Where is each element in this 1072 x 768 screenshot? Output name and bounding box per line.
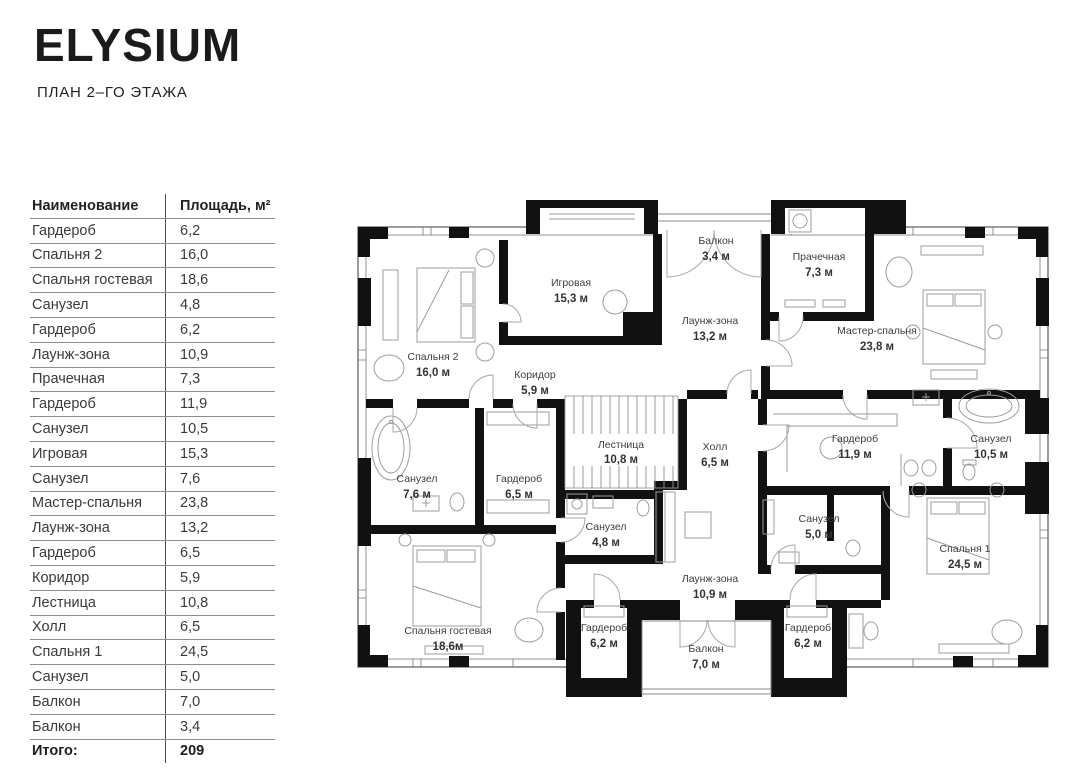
room-area-label: 6,5 м: [505, 489, 533, 501]
table-row: Санузел7,6: [30, 466, 275, 491]
room-name-label: Коридор: [514, 369, 556, 381]
room-name-label: Балкон: [688, 643, 723, 655]
table-row: Гардероб6,2: [30, 218, 275, 243]
room-area-label: 5,0 м: [805, 529, 833, 541]
room-area-label: 23,8 м: [860, 341, 894, 353]
table-row: Холл6,5: [30, 615, 275, 640]
table-row: Гардероб6,5: [30, 541, 275, 566]
table-row: Лаунж-зона10,9: [30, 342, 275, 367]
table-row: Балкон3,4: [30, 714, 275, 739]
room-name-label: Лаунж-зона: [682, 315, 739, 327]
room-area-label: 16,0 м: [416, 367, 450, 379]
room-name-label: Гардероб: [785, 622, 831, 634]
room-area-label: 5,9 м: [521, 385, 549, 397]
room-name-label: Лаунж-зона: [682, 573, 739, 585]
table-row: Балкон7,0: [30, 689, 275, 714]
table-row: Гардероб11,9: [30, 392, 275, 417]
room-name-label: Санузел: [971, 433, 1012, 445]
room-area-label: 7,6 м: [403, 489, 431, 501]
room-area-label: 4,8 м: [592, 537, 620, 549]
total-label: Итого:: [30, 739, 166, 763]
room-area-label: 6,2 м: [794, 638, 822, 650]
page-title: ПЛАН 2–ГО ЭТАЖА: [37, 84, 188, 101]
floor-plan-drawing: Балкон 3,4 м Игровая 15,3 м Прачечная 7,…: [353, 200, 1055, 700]
game-room-alcove: [540, 208, 644, 234]
room-area-label: 11,9 м: [838, 449, 871, 461]
room-name-label: Гардероб: [581, 622, 627, 634]
table-row: Спальня 124,5: [30, 640, 275, 665]
room-area-label: 7,3 м: [805, 267, 833, 279]
column-header-area: Площадь, м²: [166, 194, 276, 218]
room-area-label: 15,3 м: [554, 293, 588, 305]
table-row: Лаунж-зона13,2: [30, 516, 275, 541]
table-row: Гардероб6,2: [30, 317, 275, 342]
top-balcony-recess: [658, 210, 771, 317]
table-row: Санузел5,0: [30, 665, 275, 690]
table-row: Санузел10,5: [30, 417, 275, 442]
table-row: Коридор5,9: [30, 565, 275, 590]
room-area-label: 6,2 м: [590, 638, 618, 650]
room-area-label: 18,6м: [433, 641, 464, 653]
brand-logo: ELYSIUM: [34, 18, 241, 72]
room-name-label: Спальня гостевая: [404, 625, 491, 637]
room-name-label: Прачечная: [793, 251, 846, 263]
table-row: Санузел4,8: [30, 293, 275, 318]
room-name-label: Санузел: [586, 521, 627, 533]
room-area-label: 6,5 м: [701, 457, 729, 469]
table-row: Лестница10,8: [30, 590, 275, 615]
room-name-label: Санузел: [397, 473, 438, 485]
room-name-label: Гардероб: [832, 433, 878, 445]
room-name-label: Спальня 1: [940, 543, 991, 555]
room-area-label: 3,4 м: [702, 251, 730, 263]
page: { "header": { "logo": "ELYSIUM", "subtit…: [0, 0, 1072, 768]
total-value: 209: [166, 739, 276, 763]
room-name-label: Спальня 2: [408, 351, 459, 363]
column-header-name: Наименование: [30, 194, 166, 218]
area-table: Наименование Площадь, м² Гардероб6,2 Спа…: [30, 194, 275, 763]
table-row: Мастер-спальня23,8: [30, 491, 275, 516]
table-header-row: Наименование Площадь, м²: [30, 194, 275, 218]
room-area-label: 24,5 м: [948, 559, 982, 571]
room-name-label: Балкон: [698, 235, 733, 247]
table-row: Игровая15,3: [30, 441, 275, 466]
laundry-alcove: [785, 208, 865, 234]
room-name-label: Холл: [703, 441, 728, 453]
room-name-label: Гардероб: [496, 473, 542, 485]
table-row: Спальня 216,0: [30, 243, 275, 268]
room-name-label: Игровая: [551, 277, 591, 289]
room-area-label: 13,2 м: [693, 331, 727, 343]
room-area-label: 10,8 м: [604, 454, 638, 466]
table-row: Прачечная7,3: [30, 367, 275, 392]
room-area-label: 10,5 м: [974, 449, 1008, 461]
table-total-row: Итого: 209: [30, 739, 275, 763]
room-name-label: Мастер-спальня: [837, 325, 917, 337]
room-name-label: Санузел: [799, 513, 840, 525]
room-name-label: Лестница: [598, 439, 644, 451]
table-row: Спальня гостевая18,6: [30, 268, 275, 293]
room-area-label: 10,9 м: [693, 589, 727, 601]
room-area-label: 7,0 м: [692, 659, 720, 671]
